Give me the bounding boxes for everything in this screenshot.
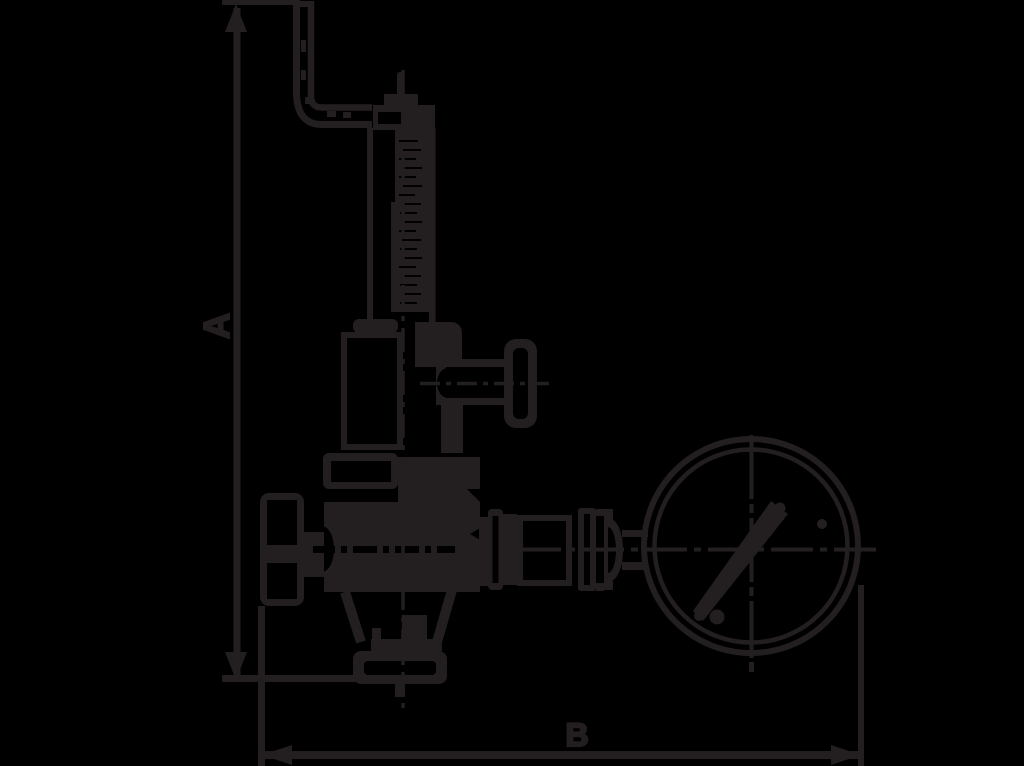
svg-text:B: B <box>565 717 588 753</box>
svg-text:A: A <box>196 313 237 339</box>
